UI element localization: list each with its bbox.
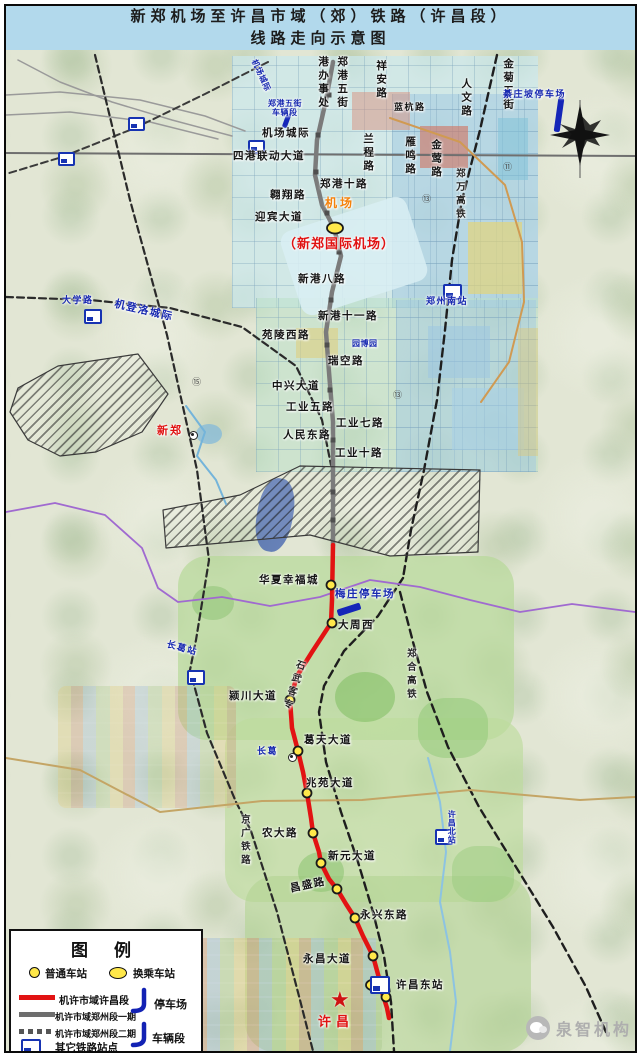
map-label: 郑港十路 bbox=[320, 178, 368, 190]
phase1-station-marker bbox=[325, 343, 330, 348]
grid-road-horizontal bbox=[6, 153, 635, 156]
map-label: 郑州南站 bbox=[426, 297, 468, 307]
phase1-station-marker bbox=[325, 211, 330, 216]
red-line-sample bbox=[19, 995, 55, 1000]
legend-title: 图 例 bbox=[11, 936, 201, 961]
legend-label: 机许市域郑州段二期 bbox=[55, 1027, 136, 1040]
map-label: 机场 bbox=[325, 197, 355, 211]
map-label: 郑港五街 bbox=[268, 99, 302, 108]
shiwu-hsr bbox=[319, 578, 403, 1051]
legend-label: 换乘车站 bbox=[133, 966, 175, 981]
map-label: 园博园 bbox=[352, 339, 378, 348]
map-label: （新郑国际机场） bbox=[283, 238, 395, 253]
map-label: 綦庄坡停车场 bbox=[503, 90, 566, 100]
map-label: 车辆段 bbox=[272, 108, 298, 117]
map-label: 华夏幸福城 bbox=[259, 574, 319, 586]
map-label: 永兴东路 bbox=[360, 909, 408, 921]
map-label: 翱翔路 bbox=[270, 189, 306, 201]
legend-label: 机许市域许昌段 bbox=[59, 992, 129, 1007]
map-label: 许昌东站 bbox=[396, 979, 444, 991]
map-label: 郑港五街 bbox=[336, 56, 348, 110]
compass-rose-icon bbox=[548, 100, 612, 178]
phase1-station-marker bbox=[328, 388, 333, 393]
phase1-station-marker bbox=[331, 490, 336, 495]
normal-station-icon bbox=[29, 967, 40, 978]
map-label: 工业五路 bbox=[286, 401, 334, 413]
map-label: 许昌 bbox=[318, 1016, 354, 1031]
map-label: 工业十路 bbox=[335, 447, 383, 459]
map-label: 四港联动大道 bbox=[233, 150, 305, 162]
map-label: 许昌北站 bbox=[447, 810, 456, 844]
map-label: ⑪ bbox=[503, 163, 512, 173]
map-label: 苑陵西路 bbox=[262, 329, 310, 341]
map-label: 新郑 bbox=[157, 425, 183, 438]
station-marker bbox=[303, 789, 312, 798]
map-label: 长葛 bbox=[257, 747, 278, 757]
watermark-text: 泉智机构 bbox=[556, 1016, 632, 1040]
map-label: 中兴大道 bbox=[272, 380, 320, 392]
depot-icon bbox=[129, 1021, 151, 1049]
parking-lot-icon bbox=[129, 987, 151, 1015]
legend-label: 车辆段 bbox=[152, 1030, 185, 1046]
station-marker bbox=[309, 829, 318, 838]
map-label: 人文路 bbox=[460, 78, 472, 119]
map-label: 永昌大道 bbox=[303, 953, 351, 965]
map-label: 迎宾大道 bbox=[255, 211, 303, 223]
legend-label: 机许市域郑州段一期 bbox=[55, 1010, 136, 1023]
map-label: 金莺路 bbox=[430, 139, 442, 180]
city-dot bbox=[189, 431, 198, 440]
map-label: ⑬ bbox=[422, 195, 431, 205]
map-label: ⑮ bbox=[192, 378, 201, 388]
interchange-station-icon bbox=[109, 967, 127, 979]
map-label: 雁鸣路 bbox=[404, 136, 416, 177]
hatch-outline-central bbox=[163, 466, 480, 556]
map-label: 新港八路 bbox=[298, 273, 346, 285]
map-label: 农大路 bbox=[262, 827, 298, 839]
map-label: ⑬ bbox=[393, 391, 402, 401]
watermark: 泉智机构 bbox=[526, 1016, 632, 1040]
phase1-station-marker bbox=[329, 298, 334, 303]
station-marker bbox=[317, 859, 326, 868]
map-label: 瑞空路 bbox=[328, 355, 364, 367]
schematic-map-image: 港办事处郑港五街祥安路人文路金菊五街雁鸣路金莺路兰程路蓝杭路机场城际四港联动大道… bbox=[0, 0, 641, 1061]
other-railway-station-icon bbox=[84, 309, 102, 324]
map-label: 兰程路 bbox=[362, 133, 374, 174]
wechat-icon bbox=[526, 1016, 550, 1040]
gray-dash-line-sample bbox=[19, 1029, 55, 1034]
map-label: 新元大道 bbox=[328, 850, 376, 862]
legend-label: 普通车站 bbox=[45, 966, 87, 981]
hatch-outline-west bbox=[10, 354, 168, 456]
map-label: 葛天大道 bbox=[304, 734, 352, 746]
station-marker bbox=[328, 619, 337, 628]
zhengwan-hsr bbox=[403, 55, 497, 578]
map-label: 梅庄停车场 bbox=[335, 588, 395, 600]
station-marker bbox=[369, 952, 378, 961]
map-label: 兆苑大道 bbox=[306, 777, 354, 789]
map-label: 祥安路 bbox=[375, 60, 387, 101]
boundary-line bbox=[6, 503, 635, 612]
map-label: 大周西 bbox=[338, 619, 374, 631]
map-label: 大学路 bbox=[62, 296, 94, 306]
station-marker bbox=[333, 885, 342, 894]
map-label: 郑合高铁 bbox=[404, 648, 415, 702]
gray-line-sample bbox=[19, 1012, 55, 1017]
map-label: 金菊五街 bbox=[502, 58, 514, 112]
map-label: 京广铁路 bbox=[238, 814, 249, 868]
railway-linework bbox=[0, 0, 641, 1061]
phase1-station-marker bbox=[331, 518, 336, 523]
other-railway-station-icon bbox=[187, 670, 205, 685]
legend-box: 图 例 普通车站 换乘车站 机许市域许昌段 机许市域郑州段一期 机许市域郑州段二… bbox=[9, 929, 203, 1056]
map-label: 工业七路 bbox=[336, 417, 384, 429]
phase1-station-marker bbox=[316, 133, 321, 138]
map-label: 港办事处 bbox=[317, 56, 329, 110]
map-label: 蓝杭路 bbox=[394, 103, 426, 113]
rail-yard-line-1 bbox=[6, 92, 245, 131]
other-railway-station-icon bbox=[58, 152, 75, 166]
map-label: 机场城际 bbox=[262, 127, 310, 139]
other-railway-station-icon bbox=[370, 976, 390, 994]
bottom-margin bbox=[0, 1053, 641, 1061]
other-railway-station-icon bbox=[128, 117, 145, 131]
phase1-station-marker bbox=[314, 170, 319, 175]
map-label: 新港十一路 bbox=[318, 310, 378, 322]
map-label: 郑万高铁 bbox=[453, 168, 464, 222]
city-dot bbox=[288, 753, 297, 762]
river-2 bbox=[428, 758, 456, 1051]
map-label: ★ bbox=[330, 988, 350, 1013]
west-diagonal-railway bbox=[95, 55, 313, 1051]
river-1 bbox=[186, 406, 226, 504]
interchange-station-marker bbox=[327, 223, 343, 234]
station-marker bbox=[351, 914, 360, 923]
legend-label: 停车场 bbox=[154, 996, 187, 1012]
phase1-station-marker bbox=[331, 438, 336, 443]
map-label: 颍川大道 bbox=[229, 690, 277, 702]
map-label: 人民东路 bbox=[283, 429, 331, 441]
zhenghe-hsr bbox=[400, 592, 606, 1032]
